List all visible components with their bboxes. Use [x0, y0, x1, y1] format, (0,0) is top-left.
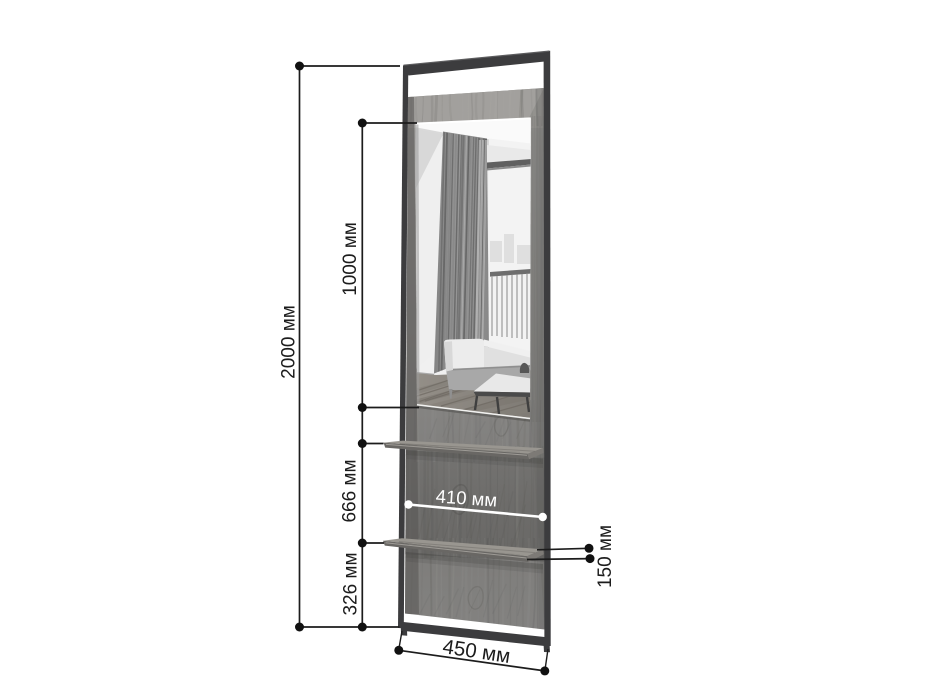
svg-text:410 мм: 410 мм: [435, 485, 498, 510]
svg-text:666 мм: 666 мм: [340, 459, 361, 522]
svg-text:1000 мм: 1000 мм: [340, 222, 361, 296]
svg-text:150 мм: 150 мм: [595, 525, 616, 588]
svg-text:2000 мм: 2000 мм: [279, 305, 300, 379]
svg-text:326 мм: 326 мм: [341, 552, 362, 615]
